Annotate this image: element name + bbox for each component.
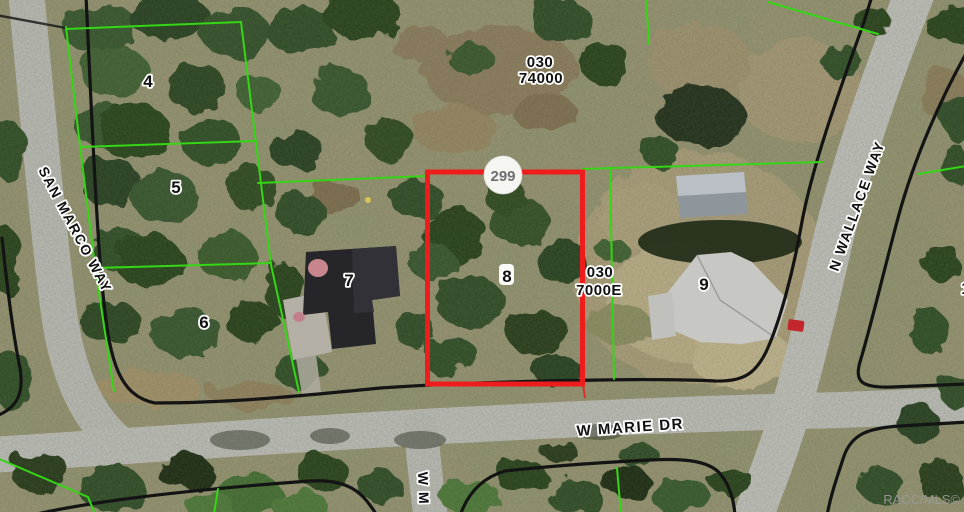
lot-label-5: 5 <box>171 178 180 197</box>
watermark-racc-mls: RACC/MLS© <box>883 492 960 507</box>
aerial-map[interactable]: 299 4 5 6 7 8 9 1 030 74000 030 7000E SA… <box>0 0 964 512</box>
yellow-object <box>365 197 371 203</box>
mls-map-viewport[interactable]: 299 4 5 6 7 8 9 1 030 74000 030 7000E SA… <box>0 0 964 512</box>
marker-number: 299 <box>490 168 515 185</box>
building-lot9-wing <box>648 292 676 340</box>
shed-lot9-roof-top <box>676 172 746 196</box>
parcel-code-east-line1: 030 <box>587 264 614 281</box>
lot-label-8: 8 <box>502 267 511 286</box>
lot-label-7: 7 <box>344 271 353 290</box>
street-label-south-branch-partial: W M <box>415 472 432 506</box>
lot-label-4: 4 <box>143 72 153 91</box>
lot-label-6: 6 <box>199 313 208 332</box>
pink-tree-large <box>308 259 328 277</box>
parcel-code-north-line1: 030 <box>527 54 554 71</box>
parcel-code-north-line2: 74000 <box>519 70 563 87</box>
parcel-marker-299[interactable]: 299 <box>484 156 522 194</box>
pink-tree-small <box>293 312 305 322</box>
red-vehicle <box>787 319 804 332</box>
parcel-code-east-line2: 7000E <box>576 282 622 299</box>
lot-label-9: 9 <box>699 275 708 294</box>
